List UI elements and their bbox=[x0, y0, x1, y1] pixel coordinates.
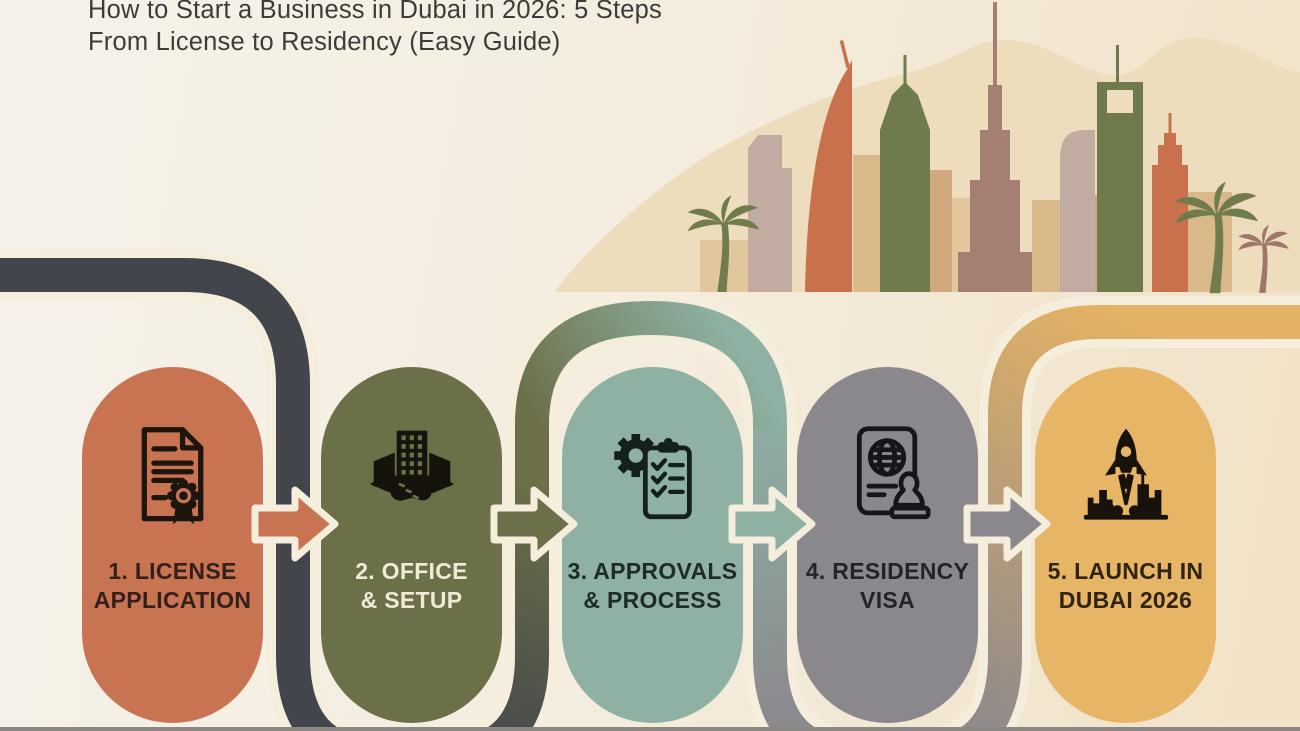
arrow-right-icon-3 bbox=[732, 490, 812, 558]
page-title: How to Start a Business in Dubai in 2026… bbox=[88, 0, 662, 58]
step-arrows bbox=[0, 0, 1300, 731]
bottom-frame-bar bbox=[0, 727, 1300, 731]
infographic-canvas: { "title": { "line1": "How to Start a Bu… bbox=[0, 0, 1300, 731]
arrow-right-icon-2 bbox=[494, 490, 574, 558]
page-title-line2: From License to Residency (Easy Guide) bbox=[88, 26, 662, 58]
arrow-right-icon-1 bbox=[255, 490, 335, 558]
page-title-line1: How to Start a Business in Dubai in 2026… bbox=[88, 0, 662, 26]
arrow-right-icon-4 bbox=[967, 490, 1047, 558]
